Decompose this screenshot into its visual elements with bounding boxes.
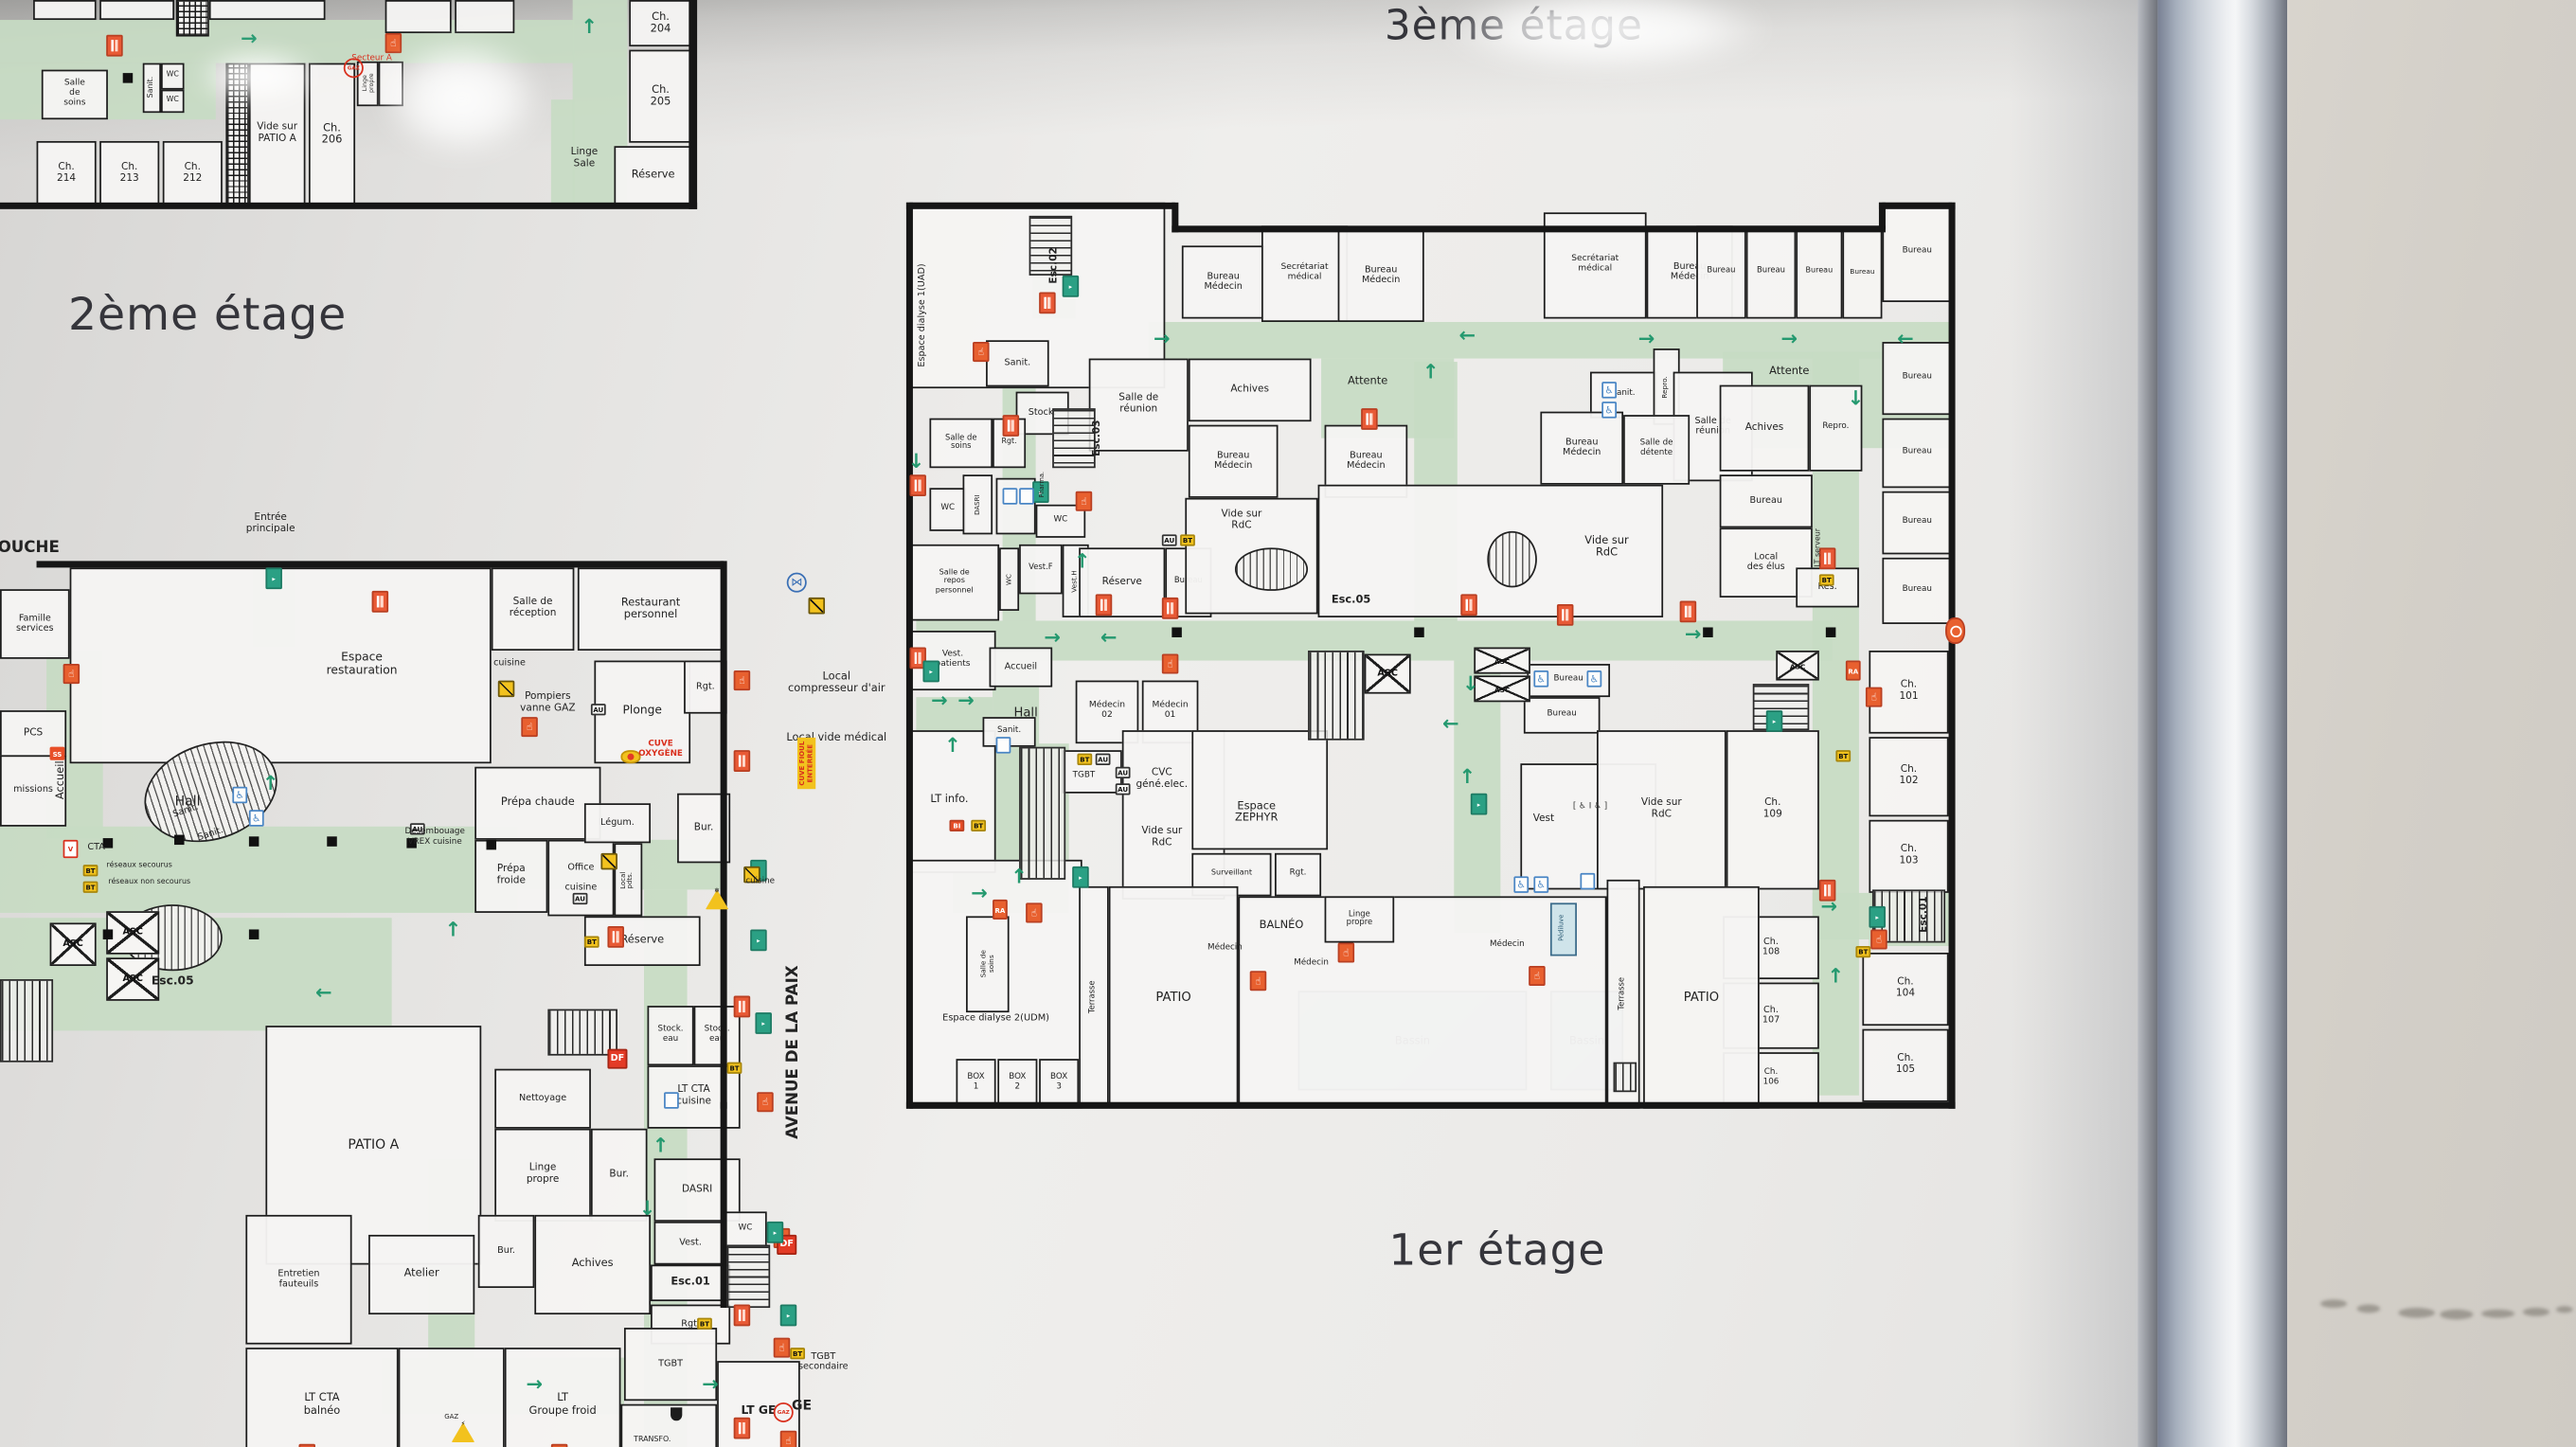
plan-label: Médecin <box>1294 959 1329 969</box>
room: Rgt. <box>1275 853 1321 897</box>
bt-tag-icon: BT <box>83 865 98 876</box>
room: Bureau <box>1696 225 1746 318</box>
sanitary-icon <box>664 1092 679 1109</box>
stair <box>727 1244 771 1308</box>
corridor <box>916 697 993 734</box>
room <box>996 478 1036 535</box>
extinguisher-icon <box>734 1418 751 1439</box>
alarm-button-icon: ☝ <box>385 33 402 53</box>
emergency-exit-icon: ▸ <box>1072 866 1089 888</box>
room: Secrétariat médical <box>1261 225 1348 322</box>
plan-label: Espace restauration <box>327 651 398 677</box>
room: Vest. <box>654 1222 727 1265</box>
wheelchair-icon: ♿ <box>1601 382 1617 399</box>
lattice-stair <box>176 0 209 37</box>
plan-label: FOUCHE <box>0 541 60 559</box>
room: WC <box>999 547 1019 611</box>
plan-label: Médecin <box>1207 944 1243 954</box>
alarm-button-icon: ☝ <box>973 342 990 362</box>
direction-arrow: → <box>702 1372 719 1396</box>
hazard-triangle-icon: ❄ <box>706 889 729 909</box>
electrical-cutoff-icon <box>600 853 617 870</box>
room: Ch. 204 <box>629 0 692 46</box>
room: Stock. eau <box>648 1006 694 1065</box>
stair <box>1308 651 1365 741</box>
plan-label: Hall <box>1013 706 1037 721</box>
emergency-exit-icon: ▸ <box>780 1305 797 1327</box>
room: Réserve <box>584 916 701 966</box>
wall <box>37 561 724 567</box>
direction-arrow: ↓ <box>1848 386 1865 410</box>
stair <box>1052 408 1096 468</box>
emergency-exit-icon: ▸ <box>1766 710 1783 732</box>
direction-arrow: → <box>1821 895 1838 919</box>
au-tag-icon: AU <box>1096 754 1111 765</box>
bucket-icon <box>671 1407 682 1420</box>
elevator-shaft: ASC <box>50 922 97 966</box>
room: Bureau <box>1796 225 1842 318</box>
direction-arrow: → <box>1638 327 1655 350</box>
bt-tag-icon: BT <box>1180 534 1195 545</box>
room <box>379 62 403 106</box>
room: Salle de repos personnel <box>909 545 999 621</box>
room: Esc.01 <box>651 1264 730 1301</box>
ra-tag-icon: RA <box>1846 661 1861 681</box>
alarm-button-icon: ☝ <box>757 1092 774 1112</box>
direction-arrow: ↑ <box>1828 964 1845 988</box>
plan-label: Espace ZEPHYR <box>1235 801 1278 826</box>
direction-arrow: ↑ <box>1422 360 1440 384</box>
fire-hose-icon <box>1945 617 1965 644</box>
plans-layer: Salle de soinsSanit.WCWCVide sur PATIO A… <box>0 0 2144 1447</box>
room <box>1191 730 1328 849</box>
alarm-button-icon: ☝ <box>1250 971 1267 991</box>
elevator-shaft: ASC <box>1776 651 1819 681</box>
room: Réserve <box>614 146 691 205</box>
room: Bureau <box>1882 558 1952 624</box>
room <box>455 0 514 33</box>
direction-arrow: ← <box>1442 712 1459 736</box>
ss-tag-icon: SS <box>50 747 65 760</box>
room: Vide sur RdC <box>1597 730 1726 889</box>
direction-arrow: → <box>241 27 258 50</box>
plan-label: Esc.02 <box>1050 247 1062 283</box>
cta-valve-icon: V <box>63 840 79 858</box>
stair <box>1019 747 1065 880</box>
plan-label: CUVE FIOUL ENTERRÉE <box>797 738 816 789</box>
sanitary-icon <box>1003 488 1018 505</box>
room: Ch. 206 <box>309 63 355 206</box>
lattice-stair <box>225 63 249 206</box>
wall <box>689 0 697 209</box>
bt-tag-icon: BT <box>697 1318 712 1330</box>
alarm-button-icon: ☝ <box>780 1431 797 1447</box>
sanitary-icon <box>1580 873 1595 890</box>
direction-arrow: ↓ <box>639 1197 656 1221</box>
photo-of-floor-plan-board: Salle de soinsSanit.WCWCVide sur PATIO A… <box>0 0 2576 1447</box>
room: Salle de détente <box>1623 415 1690 485</box>
extinguisher-icon <box>734 1305 751 1327</box>
wall <box>721 1102 727 1308</box>
stage: Salle de soinsSanit.WCWCVide sur PATIO A… <box>0 0 2576 1447</box>
pillar <box>1414 627 1424 637</box>
direction-arrow: ↓ <box>908 450 925 473</box>
room: Bureau Médecin <box>1189 425 1279 498</box>
bt-tag-icon: BT <box>584 936 599 947</box>
wall-scuff <box>2357 1305 2381 1313</box>
plan-label: CVC géné.elec. <box>1136 769 1189 792</box>
plan-label: AVENUE DE LA PAIX <box>786 965 804 1139</box>
pillar <box>249 836 259 847</box>
direction-arrow: ← <box>315 981 332 1005</box>
plan-label: TGBT <box>1073 772 1096 781</box>
wall <box>721 561 727 1108</box>
direction-arrow: → <box>1044 626 1061 650</box>
plan-label: Vide sur RdC <box>1222 509 1262 532</box>
alarm-button-icon: ☝ <box>1162 654 1179 674</box>
room <box>33 0 97 20</box>
extinguisher-icon <box>1460 594 1477 616</box>
elevator-shaft: ASC <box>1474 675 1530 702</box>
stair <box>0 979 53 1063</box>
room: Terrasse <box>1079 886 1109 1109</box>
au-tag-icon: AU <box>573 893 588 904</box>
pillar <box>1703 627 1713 637</box>
pillar <box>1826 627 1836 637</box>
room <box>385 0 452 33</box>
plan-label: CUVE OXYGÈNE <box>638 741 683 759</box>
extinguisher-icon <box>1162 598 1179 619</box>
extinguisher-icon <box>734 750 751 772</box>
room: Entretien fauteuils <box>245 1215 351 1345</box>
oval-stair <box>1487 531 1537 588</box>
valve-icon: ⋈ <box>787 573 807 593</box>
plan-label: Espace dialyse 1(UAD) <box>918 263 928 366</box>
plan-label: réseaux secourus <box>107 862 172 870</box>
bt-tag-icon: BT <box>1077 754 1092 765</box>
room: Salle de réception <box>492 567 575 651</box>
emergency-exit-icon: ▸ <box>265 567 282 589</box>
room: Linge propre <box>494 1129 591 1222</box>
plan-label: Vest <box>1533 814 1554 826</box>
au-tag-icon: AU <box>1116 783 1131 795</box>
room: Salle de soins <box>42 70 108 120</box>
sanitary-icon <box>1019 488 1034 505</box>
plan-label: LT info. <box>930 794 968 806</box>
wheelchair-icon: ♿ <box>1586 670 1601 688</box>
room: Prépa froide <box>474 840 547 913</box>
room: Office cuisine <box>547 840 614 917</box>
plan-label: Secteur A <box>351 55 392 64</box>
floor-title: 1er étage <box>1388 1228 1605 1277</box>
ra-tag-icon: RA <box>993 900 1008 920</box>
room: WC <box>724 1211 767 1248</box>
room: Linge propre <box>1325 896 1395 942</box>
room <box>209 0 326 20</box>
plan-label: Attente <box>1348 376 1387 388</box>
room: WC <box>161 63 185 90</box>
room: Bureau <box>1882 491 1952 555</box>
plan-label: Attente <box>1769 366 1809 378</box>
room: Salle de soins <box>966 916 1010 1012</box>
direction-arrow: → <box>1685 622 1702 646</box>
bt-tag-icon: BT <box>971 820 986 831</box>
wheelchair-icon: ♿ <box>1513 876 1529 893</box>
emergency-exit-icon: ▸ <box>922 661 939 683</box>
alarm-button-icon: ☝ <box>63 664 80 684</box>
direction-arrow: → <box>931 688 948 712</box>
room: Atelier <box>368 1235 474 1314</box>
direction-arrow: ↑ <box>653 1134 670 1157</box>
alarm-button-icon: ☝ <box>774 1338 791 1358</box>
extinguisher-icon <box>607 926 624 948</box>
room: DASRI <box>963 474 993 534</box>
room: Bureau <box>1882 342 1952 415</box>
extinguisher-icon <box>734 996 751 1018</box>
hazard-triangle-icon: ⚡ <box>452 1422 475 1442</box>
room: LT Groupe froid <box>505 1348 621 1447</box>
wall-scuff <box>2399 1308 2436 1318</box>
wall-scuff <box>2481 1310 2514 1318</box>
extinguisher-icon <box>1039 292 1056 313</box>
stair <box>1614 1063 1637 1093</box>
alarm-button-icon: ☝ <box>1529 966 1546 986</box>
room: Bureau <box>1882 419 1952 489</box>
pillar <box>487 840 497 850</box>
plan-label: TRANSFO. <box>634 1437 671 1445</box>
plan-label: Pharma. <box>1039 472 1046 498</box>
room: Achives <box>534 1215 651 1314</box>
room: LT CTA balnéo <box>245 1348 398 1447</box>
wheelchair-icon: ♿ <box>232 787 247 804</box>
wall <box>1172 203 1178 233</box>
room: Ch. 102 <box>1869 737 1948 816</box>
room: Ch. 213 <box>99 141 159 205</box>
room: Bur. <box>478 1215 535 1288</box>
bt-tag-icon: BT <box>727 1063 742 1074</box>
direction-arrow: → <box>971 882 988 905</box>
plan-label: Désembouage VREX cuisine <box>404 829 464 848</box>
bi-tag-icon: BI <box>949 820 964 831</box>
bt-tag-icon: BT <box>1855 946 1870 957</box>
alarm-button-icon: ☝ <box>1870 929 1887 949</box>
room: Achives <box>1189 359 1312 422</box>
oval-stair <box>1235 547 1308 591</box>
frame-pole <box>2157 0 2287 1447</box>
au-tag-icon: AU <box>1162 534 1177 545</box>
pillar <box>174 835 185 846</box>
plan-label: Linge Sale <box>571 148 599 170</box>
alarm-button-icon: ☝ <box>521 717 538 737</box>
plan-label: cuisine <box>745 878 775 887</box>
wall-right <box>2287 0 2576 1447</box>
room: Salle de soins <box>929 419 993 469</box>
alarm-button-icon: ☝ <box>734 670 751 690</box>
room: WC <box>929 488 966 531</box>
room: Bureau <box>1842 225 1882 318</box>
room: Ch. 105 <box>1862 1029 1948 1102</box>
room <box>70 567 492 763</box>
wall-scuff <box>2320 1299 2347 1308</box>
extinguisher-icon <box>1557 604 1574 626</box>
wall <box>906 203 1175 209</box>
plan-label: Accueil <box>55 760 67 799</box>
plan-label: Esc.05 <box>1332 595 1371 607</box>
room: Local pdts. <box>614 843 642 916</box>
wall <box>1879 203 1886 229</box>
direction-arrow: ← <box>1897 327 1914 350</box>
extinguisher-icon <box>1361 408 1378 430</box>
pillar <box>123 73 134 83</box>
elevator-shaft: ASC <box>106 911 159 955</box>
emergency-exit-icon: ▸ <box>1471 794 1488 815</box>
plan-label: Esc.03 <box>1093 420 1104 456</box>
plan-label: Esc.01 <box>1920 897 1931 933</box>
room: Bureau <box>1720 474 1813 527</box>
wall-scuff <box>2523 1308 2549 1316</box>
plan-label: Entrée principale <box>246 513 295 536</box>
room: WC <box>161 90 185 114</box>
plan-label: cuisine <box>493 659 526 670</box>
room: Réserve <box>1079 547 1165 617</box>
plan-label: CTA <box>87 843 104 853</box>
direction-arrow: ↑ <box>445 918 462 941</box>
plan-label: réseaux non secourus <box>108 879 190 887</box>
bt-tag-icon: BT <box>1835 750 1851 761</box>
plan-label: Pompiers vanne GAZ <box>520 692 575 715</box>
room: Bureau <box>1524 697 1601 734</box>
emergency-exit-icon: ▸ <box>750 929 767 951</box>
pillar <box>327 836 337 847</box>
plan-label: [ ♿ I ♿ ] <box>1573 803 1607 813</box>
extinguisher-icon <box>1003 415 1020 437</box>
electrical-cutoff-icon <box>809 598 826 615</box>
plan-label: GAZ <box>444 1414 458 1421</box>
room: Ch. 109 <box>1726 730 1819 889</box>
emergency-exit-icon: ▸ <box>1869 906 1886 928</box>
df-tag-icon: DF <box>607 1049 627 1069</box>
alarm-button-icon: ☝ <box>1026 902 1043 922</box>
bt-tag-icon: BT <box>83 882 98 893</box>
room: Bureau <box>1882 203 1952 302</box>
room: Ch. 214 <box>37 141 97 205</box>
emergency-exit-icon: ▸ <box>755 1012 772 1034</box>
plan-label: BALNÉO <box>1260 920 1304 932</box>
plan-label: Local compresseur d'air <box>788 671 885 696</box>
room: Accueil <box>990 648 1053 688</box>
electrical-cutoff-icon <box>498 681 515 698</box>
room: Bureau Médecin <box>1338 229 1424 322</box>
au-tag-icon: AU <box>591 704 606 715</box>
extinguisher-icon <box>1096 594 1113 616</box>
wheelchair-icon: ♿ <box>1533 670 1548 688</box>
room: Achives <box>1720 385 1810 472</box>
floor-title: 2ème étage <box>68 290 347 341</box>
room: PATIO <box>1109 886 1239 1109</box>
au-tag-icon: AU <box>1116 767 1131 778</box>
room: Nettoyage <box>494 1069 591 1129</box>
room: Bureau Médecin <box>1182 245 1265 318</box>
room: Légum. <box>584 803 651 843</box>
wall <box>1879 203 1956 209</box>
direction-arrow: ← <box>1100 626 1118 650</box>
room <box>99 0 174 20</box>
wall <box>906 1102 1956 1109</box>
room: Ch. 104 <box>1862 953 1948 1026</box>
extinguisher-icon <box>1680 600 1697 622</box>
wall <box>0 203 697 209</box>
direction-arrow: ← <box>1458 324 1476 348</box>
room: Sanit. <box>986 340 1049 386</box>
room: PATIO <box>1643 886 1760 1109</box>
room: Sanit. <box>143 63 161 114</box>
direction-arrow: ↑ <box>1011 865 1028 888</box>
room: Famille services <box>0 589 70 659</box>
emergency-exit-icon: ▸ <box>767 1222 784 1243</box>
plan-label: Médecin <box>1490 941 1525 951</box>
elevator-shaft: ASC <box>1365 654 1411 694</box>
alarm-button-icon: ☝ <box>1866 688 1883 707</box>
gas-valve-icon: GAZ <box>774 1402 794 1422</box>
pillar <box>103 929 114 939</box>
wheelchair-icon: ♿ <box>249 810 264 827</box>
wheelchair-icon: ♿ <box>1533 876 1548 893</box>
room: Prépa chaude <box>474 767 600 840</box>
room: Ch. 212 <box>163 141 223 205</box>
room: Ch. 103 <box>1869 820 1948 893</box>
plan-label: LT serveur <box>1815 528 1823 567</box>
room: Vide sur PATIO A <box>249 63 306 206</box>
plan-label: TGBT secondaire <box>798 1352 849 1373</box>
extinguisher-icon <box>106 35 123 57</box>
wall <box>1949 203 1956 1109</box>
direction-arrow: ↓ <box>1462 672 1479 696</box>
wheelchair-icon: ♿ <box>1601 402 1617 419</box>
plan-label: GE <box>792 1398 812 1413</box>
emergency-exit-icon: ▸ <box>1063 276 1080 297</box>
bt-tag-icon: BT <box>1819 574 1834 585</box>
room: Vest.F <box>1019 545 1063 595</box>
wall-scuff <box>2556 1306 2573 1313</box>
extinguisher-icon <box>372 591 389 613</box>
plan-label: Vide sur RdC <box>1584 535 1628 560</box>
wall-scuff <box>2440 1310 2473 1320</box>
direction-arrow: → <box>1780 327 1798 350</box>
pillar <box>249 929 259 939</box>
sanitary-icon <box>996 737 1011 754</box>
wall <box>1172 225 1886 232</box>
board-edge <box>2138 0 2157 1447</box>
direction-arrow: ↑ <box>1074 549 1091 573</box>
alarm-button-icon: ☝ <box>1076 491 1093 511</box>
plan-label: Esc.05 <box>152 974 194 988</box>
direction-arrow: ↑ <box>1458 765 1476 789</box>
direction-arrow: ↑ <box>262 772 279 795</box>
direction-arrow: → <box>527 1372 544 1396</box>
elevator-shaft: ASC <box>1474 648 1530 674</box>
room: Restaurant personnel <box>578 567 724 651</box>
room: Bureau <box>1746 225 1797 318</box>
plan-label: Vide sur RdC <box>1141 827 1182 849</box>
room: Bureau Médecin <box>1540 412 1623 485</box>
direction-arrow: ↑ <box>581 15 598 39</box>
direction-arrow: → <box>1154 327 1171 350</box>
floor-title: 3ème étage <box>1385 3 1643 50</box>
direction-arrow: ↑ <box>944 734 961 758</box>
plan-label: Espace dialyse 2(UDM) <box>942 1013 1049 1024</box>
room: Ch. 205 <box>629 50 692 143</box>
direction-arrow: → <box>957 688 975 712</box>
